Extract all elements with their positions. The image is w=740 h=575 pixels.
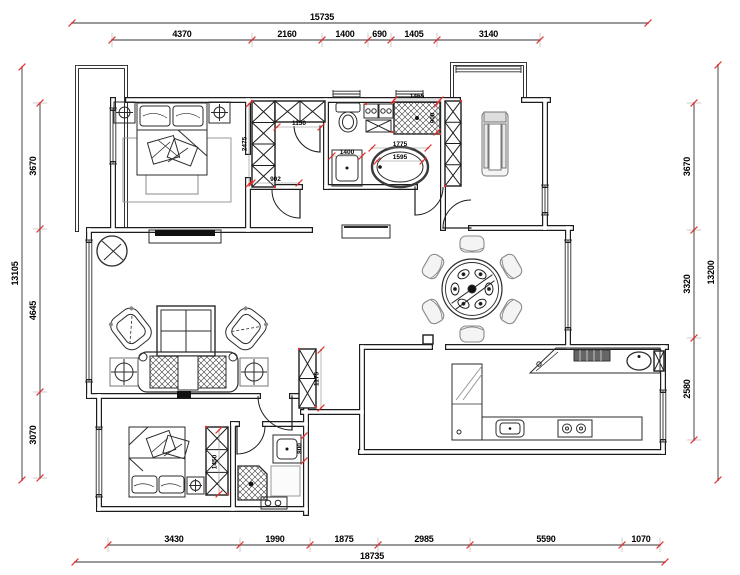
- master-bed: [137, 103, 207, 175]
- svg-text:1875: 1875: [334, 534, 353, 544]
- bed2: [129, 427, 189, 497]
- svg-text:3670: 3670: [28, 156, 38, 175]
- svg-text:3320: 3320: [682, 274, 692, 293]
- dining-chair: [460, 326, 484, 342]
- floor-plan-sheet: 1573543702160140069014053140343019901875…: [0, 0, 740, 575]
- second-bathroom-fixtures: [238, 435, 301, 509]
- kitchen-fixtures: [452, 348, 660, 440]
- dining-set: [420, 236, 524, 342]
- svg-text:1990: 1990: [265, 534, 284, 544]
- svg-text:3070: 3070: [28, 425, 38, 444]
- laundry-unit: [364, 104, 393, 132]
- armchair: [222, 304, 271, 354]
- treadmill: [482, 112, 508, 176]
- coffee-table: [157, 306, 215, 356]
- bath2-counter: [271, 466, 300, 496]
- svg-text:800: 800: [297, 443, 304, 454]
- dining-chair: [498, 297, 524, 326]
- svg-text:1175: 1175: [314, 372, 321, 386]
- hall-console-table: [342, 225, 390, 238]
- svg-text:1150: 1150: [292, 120, 306, 127]
- kitchen-bar-counter: [530, 348, 660, 373]
- svg-text:902: 902: [270, 176, 281, 183]
- kitchen-tall-unit: [654, 351, 664, 371]
- svg-text:3140: 3140: [479, 29, 498, 39]
- svg-text:1400: 1400: [335, 29, 354, 39]
- dimension-annotations: 1573543702160140069014053140343019901875…: [10, 12, 721, 565]
- bathtub: [372, 147, 428, 187]
- svg-text:4645: 4645: [28, 301, 38, 320]
- svg-text:5590: 5590: [536, 534, 555, 544]
- svg-text:18735: 18735: [360, 551, 384, 561]
- svg-text:2160: 2160: [277, 29, 296, 39]
- svg-text:2475: 2475: [242, 136, 249, 151]
- room-wardrobe: [445, 101, 461, 186]
- svg-text:1775: 1775: [393, 141, 408, 148]
- multipurpose-room: [482, 112, 508, 176]
- svg-text:3670: 3670: [682, 157, 692, 176]
- dining-chair: [420, 252, 446, 281]
- svg-text:1070: 1070: [631, 534, 650, 544]
- nightstand-lamp: [187, 477, 204, 494]
- tv-unit: [149, 230, 221, 243]
- svg-text:1405: 1405: [404, 29, 423, 39]
- side-table-lamp: [240, 358, 268, 386]
- nightstand-lamp: [114, 102, 135, 123]
- wardrobe-cabinets: [206, 101, 664, 495]
- bar-basin: [627, 352, 651, 370]
- svg-text:15735: 15735: [310, 12, 334, 22]
- dining-chair: [498, 252, 524, 281]
- plant: [97, 236, 127, 266]
- kitchen-base-counter: [482, 417, 642, 440]
- svg-text:4370: 4370: [172, 29, 191, 39]
- side-table-lamp: [110, 358, 138, 386]
- svg-text:2580: 2580: [682, 379, 692, 398]
- svg-text:900: 900: [430, 112, 437, 123]
- bath2-shower: [238, 466, 267, 500]
- svg-text:2985: 2985: [414, 534, 433, 544]
- cooktop: [558, 420, 592, 437]
- svg-text:1595: 1595: [393, 154, 408, 161]
- nightstand-lamp: [209, 102, 230, 123]
- second-bedroom-furniture: [129, 427, 204, 497]
- kitchen-corner-cabinet: [452, 364, 482, 440]
- svg-text:3430: 3430: [164, 534, 183, 544]
- svg-text:1450: 1450: [212, 454, 219, 469]
- sofa: [138, 352, 238, 398]
- svg-text:13200: 13200: [706, 260, 716, 284]
- living-room-furniture: [97, 230, 270, 398]
- toilet: [336, 103, 360, 132]
- svg-text:13105: 13105: [10, 261, 20, 285]
- closet-wardrobe: [252, 101, 275, 187]
- main-bathroom-fixtures: [332, 102, 440, 187]
- dining-chair: [460, 236, 484, 252]
- closet-wardrobe-top: [275, 101, 325, 122]
- dining-chair: [420, 297, 446, 326]
- master-bedroom-furniture: [114, 102, 231, 202]
- floor-plan-canvas: 1573543702160140069014053140343019901875…: [0, 0, 740, 575]
- svg-text:690: 690: [372, 29, 387, 39]
- armchair: [107, 304, 156, 354]
- svg-text:1465: 1465: [410, 93, 425, 100]
- svg-text:1400: 1400: [340, 149, 355, 156]
